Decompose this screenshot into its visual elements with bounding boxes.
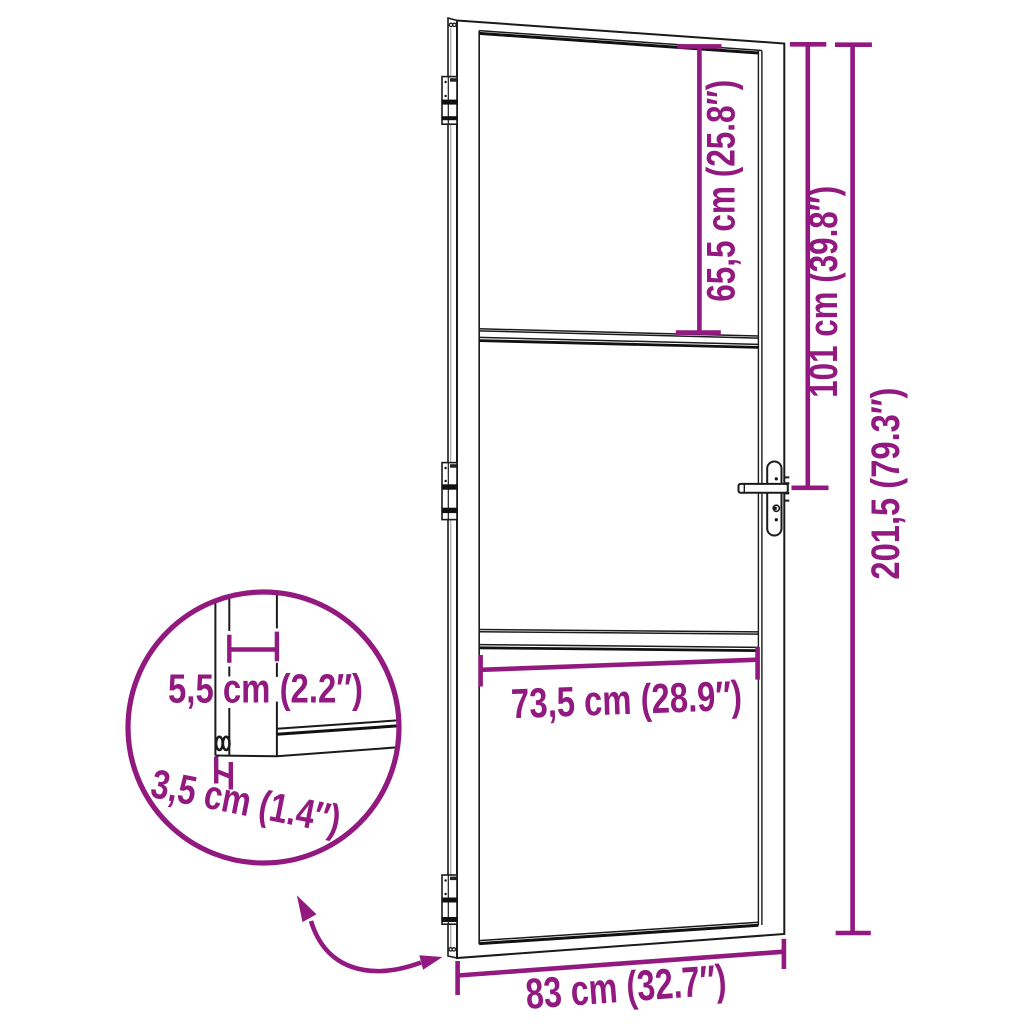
svg-text:83 cm (32.7″): 83 cm (32.7″) (524, 956, 728, 1019)
svg-text:65,5 cm (25.8″): 65,5 cm (25.8″) (700, 80, 744, 302)
svg-text:101 cm (39.8″): 101 cm (39.8″) (802, 186, 846, 398)
svg-text:5,5 cm (2.2″): 5,5 cm (2.2″) (168, 665, 363, 711)
svg-text:201,5 (79.3″): 201,5 (79.3″) (864, 388, 908, 580)
svg-text:73,5 cm (28.9″): 73,5 cm (28.9″) (510, 672, 743, 727)
